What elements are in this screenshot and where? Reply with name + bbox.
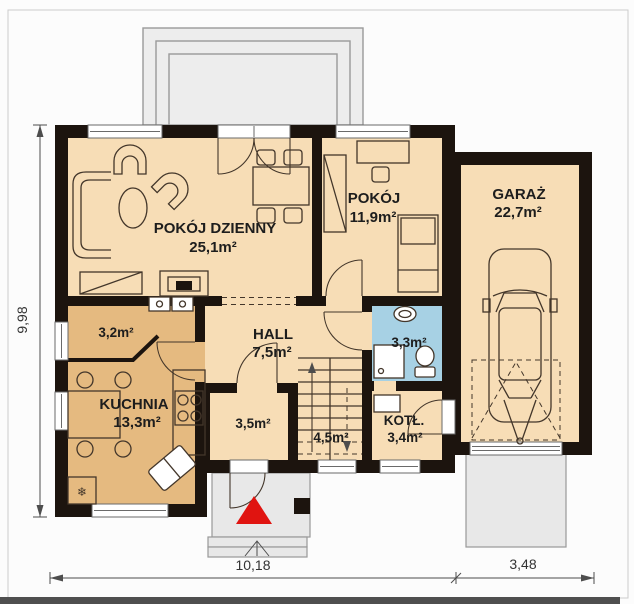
boiler-label: KOTŁ. [384, 413, 425, 428]
floor-plan-svg: ❄ [0, 0, 634, 604]
boiler-window [380, 460, 420, 473]
bottom-edge-strip [0, 597, 620, 604]
stairs-window [318, 460, 356, 473]
snowflake-icon: ❄ [77, 485, 87, 499]
bedroom-area: 11,9m² [350, 209, 397, 226]
stairs-area: 4,5m² [313, 430, 349, 445]
porch-post [294, 498, 310, 514]
kitchen-area: 13,3m² [113, 414, 161, 431]
boiler-area: 3,4m² [387, 430, 423, 445]
bedroom-window [336, 125, 410, 138]
driveway-apron [466, 453, 566, 547]
dim-house-width-label: 10,18 [235, 557, 270, 573]
garage-area: 22,7m² [494, 204, 542, 221]
living-window [88, 125, 162, 138]
terrace [143, 28, 363, 125]
sink [394, 307, 416, 322]
living-room-area: 25,1m² [189, 239, 237, 256]
pantry-window [55, 322, 68, 360]
dim-height-label: 9,98 [14, 306, 30, 333]
toilet [415, 346, 435, 377]
boiler-garage-door-opening [442, 400, 455, 434]
closet-area: 3,5m² [235, 416, 271, 431]
dimension-left: 9,98 [14, 125, 47, 517]
hall-label: HALL [253, 326, 293, 343]
kitchen-label: KUCHNIA [99, 396, 168, 413]
garage-label: GARAŻ [492, 186, 545, 203]
kitchen-bottom-window [92, 504, 168, 517]
bedroom-label: POKÓJ [348, 189, 401, 207]
dim-garage-width-label: 3,48 [509, 556, 536, 572]
kitchen-side-window [55, 392, 68, 430]
pantry-area: 3,2m² [98, 325, 134, 340]
living-room-label: POKÓJ DZIENNY [154, 219, 277, 237]
front-door-opening [230, 460, 268, 473]
boiler-unit [374, 395, 400, 412]
hall-area: 7,5m² [252, 344, 291, 361]
garage-door [470, 442, 562, 455]
floor-plan-canvas: ❄ [0, 0, 634, 604]
bathroom-area: 3,3m² [391, 335, 427, 350]
dimension-bottom: 10,18 3,48 [50, 556, 594, 584]
terrace-door-opening [218, 125, 290, 138]
